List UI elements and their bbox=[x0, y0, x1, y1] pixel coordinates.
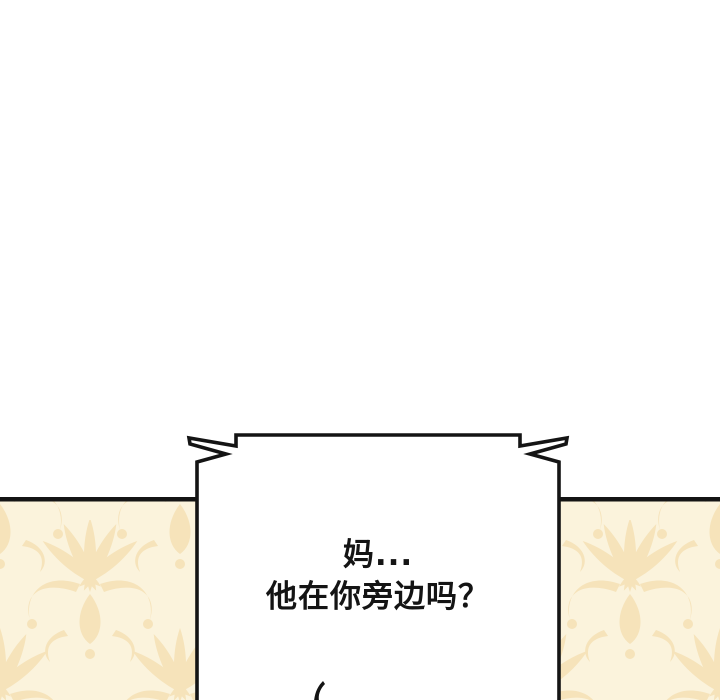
bubble-text-line-1: 妈... bbox=[197, 534, 559, 576]
bubble-text-line-2: 他在你旁边吗？ bbox=[197, 576, 559, 618]
speech-bubble-text: 妈... 他在你旁边吗？ bbox=[197, 534, 559, 618]
comic-panel: 妈... 他在你旁边吗？ bbox=[0, 0, 720, 700]
